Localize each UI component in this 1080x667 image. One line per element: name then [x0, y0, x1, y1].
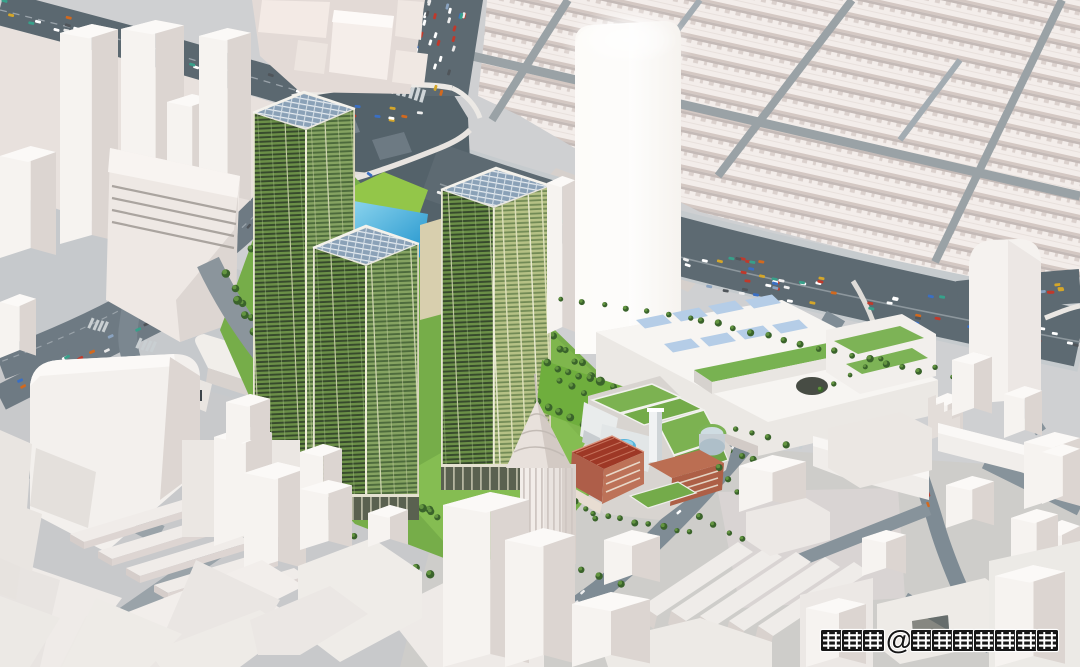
svg-text:@: @ — [886, 625, 912, 655]
